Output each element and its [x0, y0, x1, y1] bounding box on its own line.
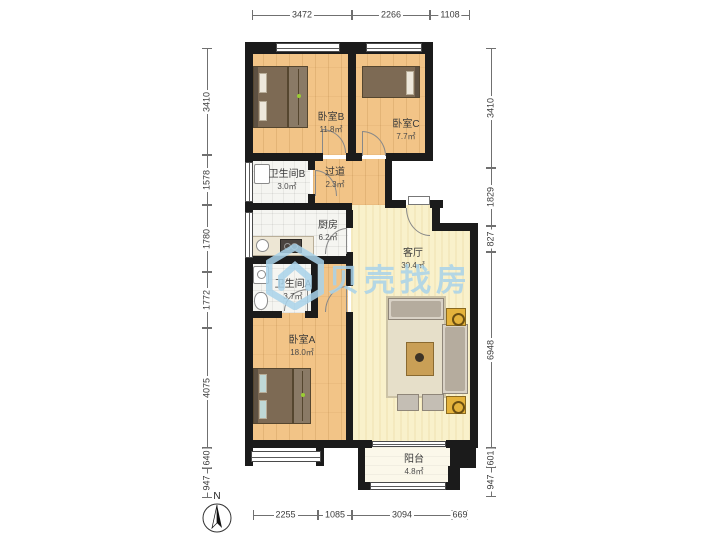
compass-icon: [201, 502, 233, 534]
ottoman-icon: [397, 394, 419, 411]
wall-segment: [245, 203, 352, 210]
bed-icon: [253, 66, 288, 128]
ottoman-icon: [422, 394, 444, 411]
wall-segment: [346, 153, 362, 161]
room-label-bedroom-b: 卧室B11.8㎡: [318, 112, 345, 135]
bed-icon: [362, 66, 420, 98]
wall-segment: [311, 264, 318, 318]
wall-segment: [346, 264, 353, 286]
floorplan-canvas: 卧室B11.8㎡ 卧室C7.7㎡ 卫生间B3.0㎡ 过道2.3㎡ 厨房6.2㎡ …: [0, 0, 720, 540]
bay-window: [251, 451, 321, 462]
room-label-bathroom-b: 卫生间B3.0㎡: [269, 169, 306, 192]
wall-segment: [245, 256, 353, 264]
dim-segment: 3472: [252, 10, 352, 20]
dim-segment: 1108: [430, 10, 470, 20]
coffee-table-icon: [406, 342, 434, 376]
dim-segment: 2255: [253, 510, 318, 520]
dim-segment: 3094: [352, 510, 452, 520]
washer-icon: [253, 266, 269, 284]
wall-segment: [245, 153, 323, 161]
wardrobe-icon: [288, 66, 308, 128]
bed-icon: [253, 368, 293, 424]
dim-segment: 640: [202, 448, 212, 468]
window: [370, 482, 446, 490]
dim-segment: 601: [486, 448, 496, 467]
dim-segment: 1578: [202, 155, 212, 205]
window: [366, 43, 422, 52]
dim-segment: 4075: [202, 328, 212, 448]
side-table-icon: [446, 308, 466, 326]
room-label-hallway: 过道2.3㎡: [325, 167, 345, 190]
sink-icon: [254, 164, 270, 184]
window: [245, 212, 253, 258]
room-label-balcony: 阳台4.8㎡: [404, 454, 424, 477]
dim-segment: 827: [486, 226, 496, 252]
dim-segment: 1085: [318, 510, 352, 520]
wall-segment: [305, 311, 318, 318]
wall-segment: [245, 311, 282, 318]
sofa-icon: [388, 298, 444, 320]
dim-segment: 1780: [202, 205, 212, 272]
dim-segment: 2266: [352, 10, 430, 20]
wall-segment: [346, 210, 353, 228]
north-label: N: [200, 492, 234, 502]
dim-segment: 1829: [486, 168, 496, 226]
stove-icon: [280, 239, 302, 253]
dim-segment: 3410: [202, 48, 212, 155]
dim-segment: 1772: [202, 272, 212, 328]
dim-segment: 947: [486, 467, 496, 497]
room-label-kitchen: 厨房6.2㎡: [318, 220, 338, 243]
balcony-slider: [372, 441, 446, 447]
dim-segment: 669: [452, 510, 468, 520]
wall-segment: [385, 200, 406, 208]
dim-segment: 6948: [486, 252, 496, 448]
wall-segment: [425, 42, 433, 161]
wall-segment: [346, 312, 353, 440]
room-label-bedroom-a: 卧室A18.0㎡: [289, 335, 316, 358]
entry-door-leaf: [408, 196, 430, 205]
wall-segment: [245, 440, 372, 448]
dim-segment: 3410: [486, 48, 496, 168]
wall-segment: [450, 448, 476, 468]
room-label-bathroom-a: 卫生间A3.7㎡: [275, 279, 312, 302]
wall-segment: [348, 54, 356, 154]
kitchen-sink-icon: [256, 239, 269, 252]
north-compass: N: [200, 492, 234, 539]
room-label-living-room: 客厅30.4㎡: [401, 248, 425, 271]
toilet-icon: [254, 292, 268, 310]
room-label-bedroom-c: 卧室C7.7㎡: [392, 119, 419, 142]
wardrobe-icon: [293, 368, 311, 424]
window: [245, 162, 253, 202]
wall-segment: [446, 440, 478, 448]
window: [276, 43, 340, 52]
wall-segment: [470, 223, 478, 448]
side-table-icon: [446, 396, 466, 414]
wall-segment: [308, 161, 315, 170]
sofa-icon: [442, 324, 468, 394]
